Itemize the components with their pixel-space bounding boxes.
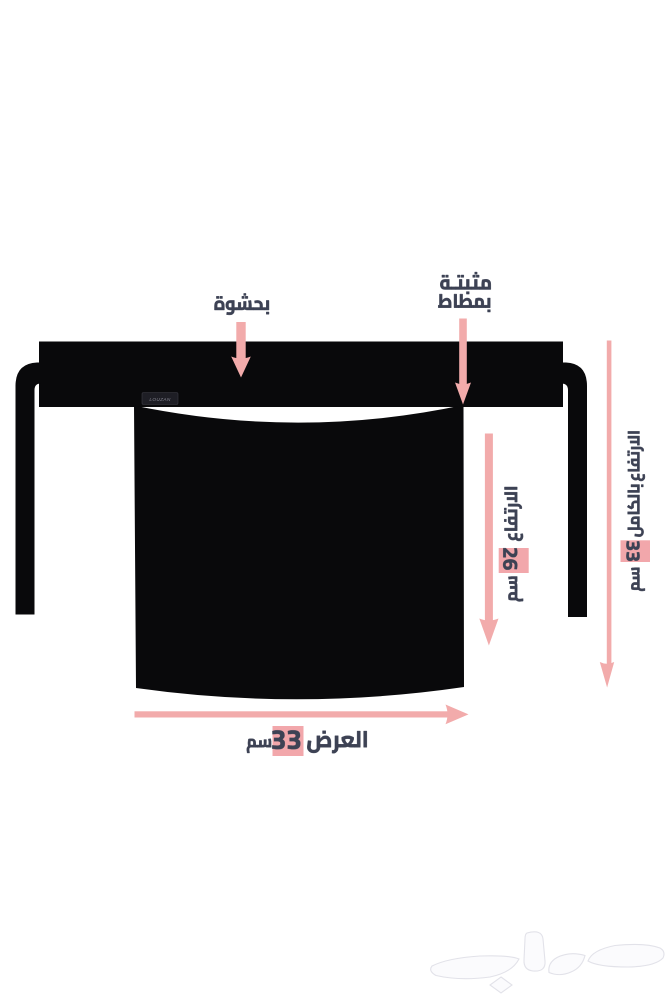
svg-text:LOUZAN: LOUZAN bbox=[149, 397, 170, 403]
